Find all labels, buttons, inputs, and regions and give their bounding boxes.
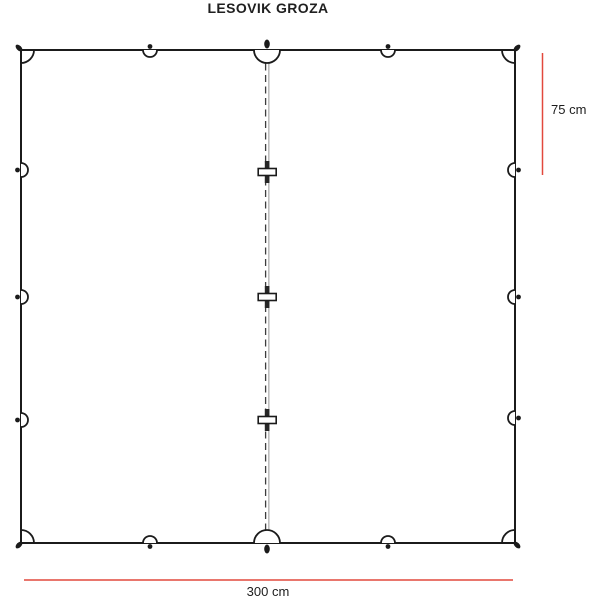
tarp-schematic-page: LESOVIK GROZA [0,0,600,600]
attachment-loop-bottom [143,536,157,549]
ridge-toggles [258,161,276,431]
attachment-loop-right [508,290,521,304]
attachment-loop-bottom [381,536,395,549]
corner-loop-bottom-right [502,530,522,550]
attachment-loop-left [15,290,28,304]
ridge-toggle [258,161,276,183]
attachment-loop-left [15,413,28,427]
attachment-loop-top [143,44,157,57]
corner-loop-bottom-left [14,530,34,550]
attachment-loop-left [15,163,28,177]
tarp-diagram [0,0,600,600]
attachment-loop-top [381,44,395,57]
ridge-loop-top [254,40,280,64]
corner-loop-top-left [14,43,34,63]
corner-loop-top-right [502,43,522,63]
ridge-loop-bottom [254,530,280,554]
dimension-label-300cm: 300 cm [198,584,338,599]
attachment-loop-right [508,411,521,425]
dimension-label-75cm: 75 cm [551,102,586,117]
ridge-toggle [258,409,276,431]
attachment-loop-right [508,163,521,177]
ridge-toggle [258,286,276,308]
